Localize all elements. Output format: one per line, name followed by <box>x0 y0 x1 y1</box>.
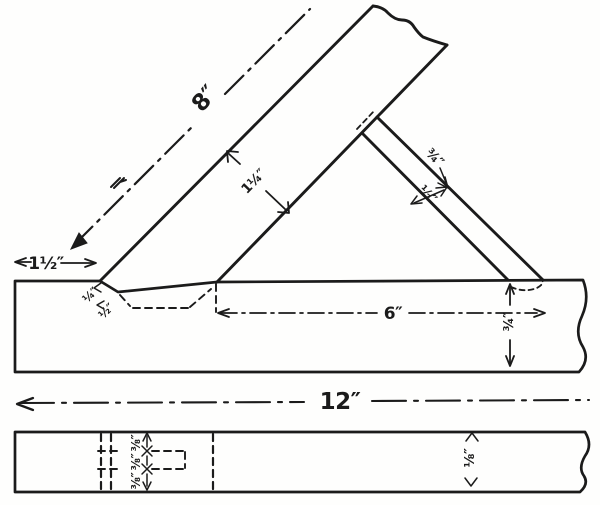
bar-length-label: 12″ <box>320 389 361 415</box>
rafter-length-dim-line <box>74 9 310 245</box>
rafter-right-edge <box>217 45 447 282</box>
seat-length-label: 6″ <box>384 304 403 324</box>
centerline-blot <box>111 178 126 188</box>
rafter-width-shaft-upper <box>229 154 240 164</box>
bar-length-line-right <box>372 400 589 401</box>
strut-upper-edge <box>377 117 543 280</box>
joint-drawing: 8″ 1¼″ ¾″ ½″ 1½″ ¼″ ½″ 6″ ¾ <box>0 0 600 505</box>
front-dimensions: 8″ 1¼″ ¾″ ½″ 1½″ ¼″ ½″ 6″ ¾ <box>15 9 589 415</box>
strut-hidden-end-cap <box>357 110 375 129</box>
rafter-length-label: 8″ <box>187 81 223 117</box>
plan-seg1-label: ⅜″ <box>129 433 143 451</box>
rafter-width-label: 1¼″ <box>238 166 269 198</box>
drawing-sheet: 8″ 1¼″ ¾″ ½″ 1½″ ¼″ ½″ 6″ ¾ <box>0 0 600 505</box>
bar-depth-label: ¾″ <box>501 312 517 331</box>
plan-seg3-label: ⅜″ <box>129 471 143 489</box>
plan-seg2-label: ⅜″ <box>129 452 143 470</box>
notch-depth-label: ¼″ <box>79 284 100 305</box>
plan-depth-tick-bottom <box>465 478 477 486</box>
rafter-width-shaft-lower <box>266 191 286 210</box>
rafter-left-edge <box>100 6 373 281</box>
rafter-break-line <box>373 6 447 45</box>
plan-depth-label: ⅛″ <box>462 448 478 467</box>
end-offset-label: 1½″ <box>28 254 64 274</box>
bar-length-line-left <box>20 402 304 403</box>
plan-view: ⅜″ ⅜″ ⅜″ ⅛″ <box>15 432 589 492</box>
plan-depth-tick-top <box>466 433 478 441</box>
